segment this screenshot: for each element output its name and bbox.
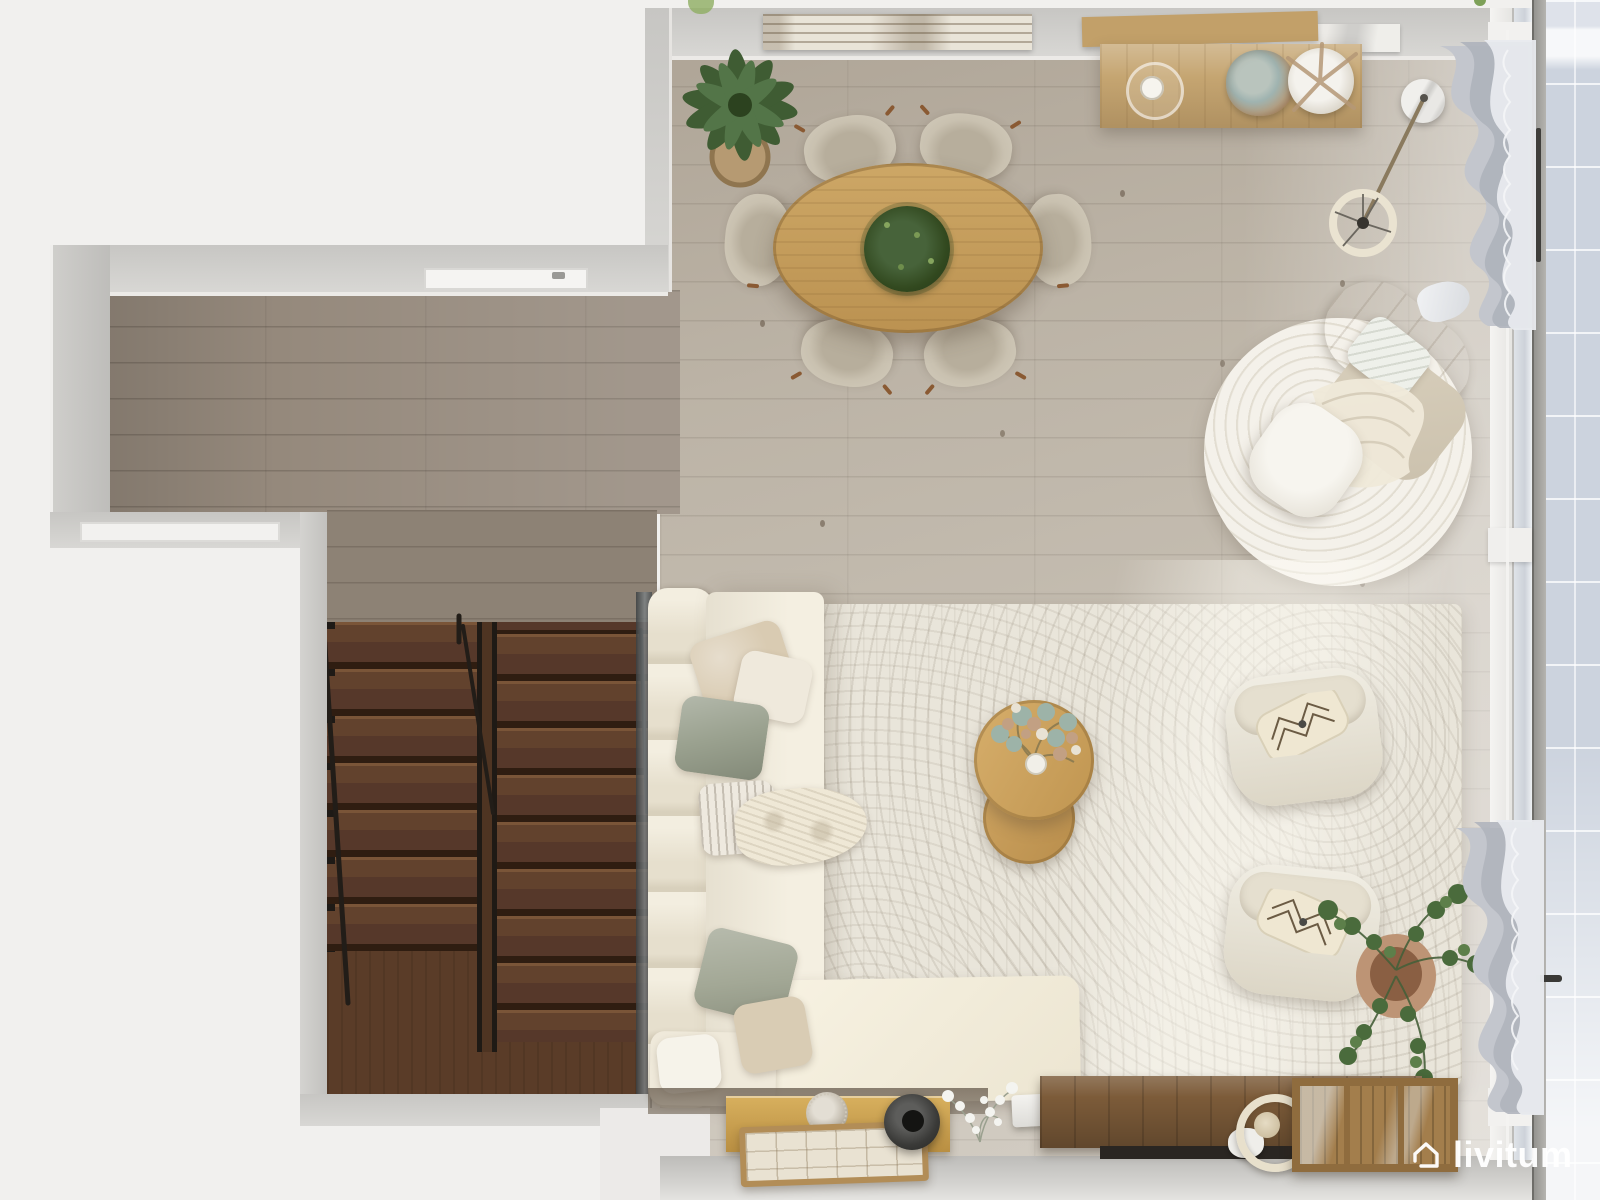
sphere-vase-opening — [902, 1110, 924, 1132]
throw-pillow-beige-2 — [731, 994, 814, 1075]
wall-stair-bottom — [300, 1094, 650, 1126]
watermark: livitum — [1408, 1134, 1573, 1176]
centerpiece-sprig-icon — [884, 222, 890, 228]
candle — [1140, 76, 1164, 100]
stair-rails-icon — [300, 590, 660, 1110]
table-centerpiece-plant — [864, 206, 950, 292]
throw-pillow-sage — [673, 694, 771, 782]
hall-floor — [105, 290, 680, 514]
hall-door-lower — [80, 522, 280, 542]
wall-hall-left — [50, 245, 110, 520]
wall-stair-left — [300, 512, 327, 1112]
curtain-bottom-icon — [1404, 820, 1544, 1115]
hall-door-handle — [552, 272, 565, 279]
arm-pillow — [655, 1033, 723, 1095]
leaf-tip-2-icon — [1474, 0, 1486, 6]
floor-plan-render: livitum — [0, 0, 1600, 1200]
ring-lamp-disc — [1254, 1112, 1280, 1138]
accent-armchair — [1221, 663, 1388, 811]
chevron-pillow-icon — [1251, 688, 1354, 759]
house-icon — [1408, 1137, 1444, 1173]
planter-divider — [1344, 1082, 1350, 1168]
curtain-top-icon — [1400, 40, 1540, 330]
brand-name: livitum — [1453, 1134, 1573, 1176]
table-bouquet-icon — [964, 672, 1114, 822]
window-mullion-mid — [1488, 528, 1532, 562]
dining-plant-icon — [648, 10, 843, 205]
